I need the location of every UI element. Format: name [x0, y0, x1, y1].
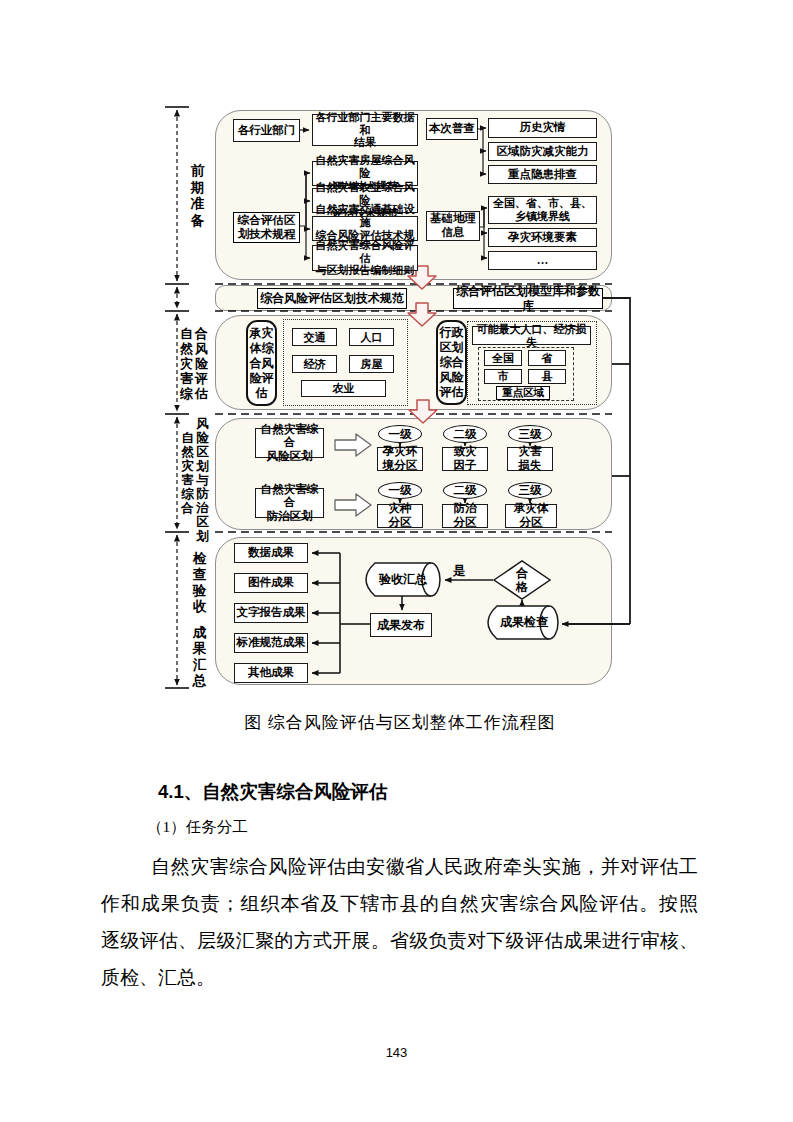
- spec-traffic-box: 自然灾害交通基础设施 综合风险评估技术规范: [312, 216, 418, 241]
- disaster-type-zone-box: 灾种 分区: [377, 504, 423, 528]
- strip-right-box: 综合评估区划模型库和参数库: [453, 288, 603, 309]
- history-box: 历史灾情: [488, 118, 597, 138]
- geo-info-box: 基础地理 信息: [426, 211, 480, 241]
- loss-title-box: 可能最大人口、经济损失: [472, 326, 591, 345]
- side-label-zoning-col1: 自然灾害综合: [180, 431, 195, 515]
- bearer-assessment-box: 承灾体综合风险评估: [246, 320, 277, 406]
- region-county-box: 县: [528, 369, 566, 384]
- page-number: 143: [0, 1045, 793, 1060]
- region-national-box: 全国: [484, 350, 522, 366]
- body-paragraph: 自然灾害综合风险评估由安徽省人民政府牵头实施，并对评估工 作和成果负责；组织本省…: [101, 848, 698, 996]
- prevent-level3-ellipse: 三级: [508, 482, 552, 499]
- figure-caption: 图 综合风险评估与区划整体工作流程图: [150, 711, 650, 734]
- item-agriculture-box: 农业: [301, 380, 386, 397]
- prevent-zoning-box: 自然灾害综合 防治区划: [255, 488, 324, 518]
- prevention-zone-box: 防治 分区: [442, 504, 488, 528]
- dept-data-box: 各行业部门主要数据和 结果: [312, 114, 418, 146]
- publish-box: 成果发布: [370, 613, 432, 637]
- sub-heading: （1）任务分工: [147, 817, 447, 838]
- item-economy-box: 经济: [292, 355, 337, 373]
- more-box: …: [488, 251, 597, 270]
- output-map-box: 图件成果: [234, 573, 308, 593]
- hidden-danger-box: 重点隐患排查: [488, 165, 597, 184]
- yes-label: 是: [449, 563, 469, 579]
- side-label-assess-col1: 自然灾害综: [179, 326, 194, 401]
- side-label-zoning-col2: 风险区划与防治区划: [195, 417, 210, 543]
- output-report-box: 文字报告成果: [234, 603, 308, 623]
- dept-box: 各行业部门: [233, 119, 300, 142]
- region-city-box: 市: [484, 369, 522, 384]
- side-label-summary: 成果汇总: [192, 625, 207, 689]
- paragraph-line: 自然灾害综合风险评估由安徽省人民政府牵头实施，并对评估工: [101, 848, 698, 885]
- output-data-box: 数据成果: [234, 543, 308, 563]
- accept-summary-label: 验收汇总: [372, 570, 434, 588]
- risk-loss-box: 灾害 损失: [507, 447, 553, 471]
- paragraph-line: 质检、汇总。: [101, 959, 698, 996]
- survey-box: 本次普查: [426, 118, 478, 140]
- spec-report-box: 自然灾害综合风险评估 与区划报告编制细则: [312, 245, 418, 271]
- inspect-label: 成果检查: [494, 613, 554, 631]
- qualified-label: 合格: [514, 565, 530, 595]
- item-population-box: 人口: [349, 328, 394, 346]
- output-standard-box: 标准规范成果: [234, 633, 308, 653]
- side-label-assess-col2: 合风险评估: [194, 326, 209, 401]
- admin-assessment-box: 行政区划综合风险评估: [436, 320, 467, 405]
- risk-zoning-box: 自然灾害综合 风险区划: [255, 428, 324, 458]
- risk-factor-box: 致灾 因子: [442, 447, 488, 471]
- strip-left-box: 综合风险评估区划技术规范: [257, 288, 407, 309]
- side-label-check: 检查验收: [192, 551, 207, 615]
- env-factor-box: 孕灾环境要素: [488, 228, 597, 247]
- boundary-box: 全国、省、市、县、 乡镇境界线: [488, 196, 597, 224]
- tech-regulation-box: 综合评估区 划技术规程: [233, 212, 300, 243]
- risk-level2-ellipse: 二级: [443, 425, 487, 443]
- section-heading: 4.1、自然灾害综合风险评估: [158, 779, 618, 804]
- output-other-box: 其他成果: [234, 663, 308, 683]
- prevent-level1-ellipse: 一级: [378, 482, 422, 499]
- region-province-box: 省: [528, 350, 566, 366]
- capacity-box: 区域防灾减灾能力: [488, 142, 597, 161]
- risk-level3-ellipse: 三级: [508, 425, 552, 443]
- risk-env-zone-box: 孕灾环 境分区: [377, 447, 423, 471]
- document-page: 前期准备 自然灾害综 合风险评估 自然灾害综合 风险区划与防治区划 检查验收 成…: [0, 0, 793, 1122]
- prevent-level2-ellipse: 二级: [443, 482, 487, 499]
- paragraph-line: 作和成果负责；组织本省及下辖市县的自然灾害综合风险评估。按照: [101, 885, 698, 922]
- key-region-box: 重点区域: [496, 386, 550, 400]
- item-house-box: 房屋: [349, 355, 394, 373]
- side-label-preparation: 前期准备: [190, 163, 205, 229]
- paragraph-line: 逐级评估、层级汇聚的方式开展。省级负责对下级评估成果进行审核、: [101, 922, 698, 959]
- bearer-zone-box: 承灾体 分区: [505, 504, 557, 528]
- risk-level1-ellipse: 一级: [378, 425, 422, 443]
- item-traffic-box: 交通: [292, 328, 337, 346]
